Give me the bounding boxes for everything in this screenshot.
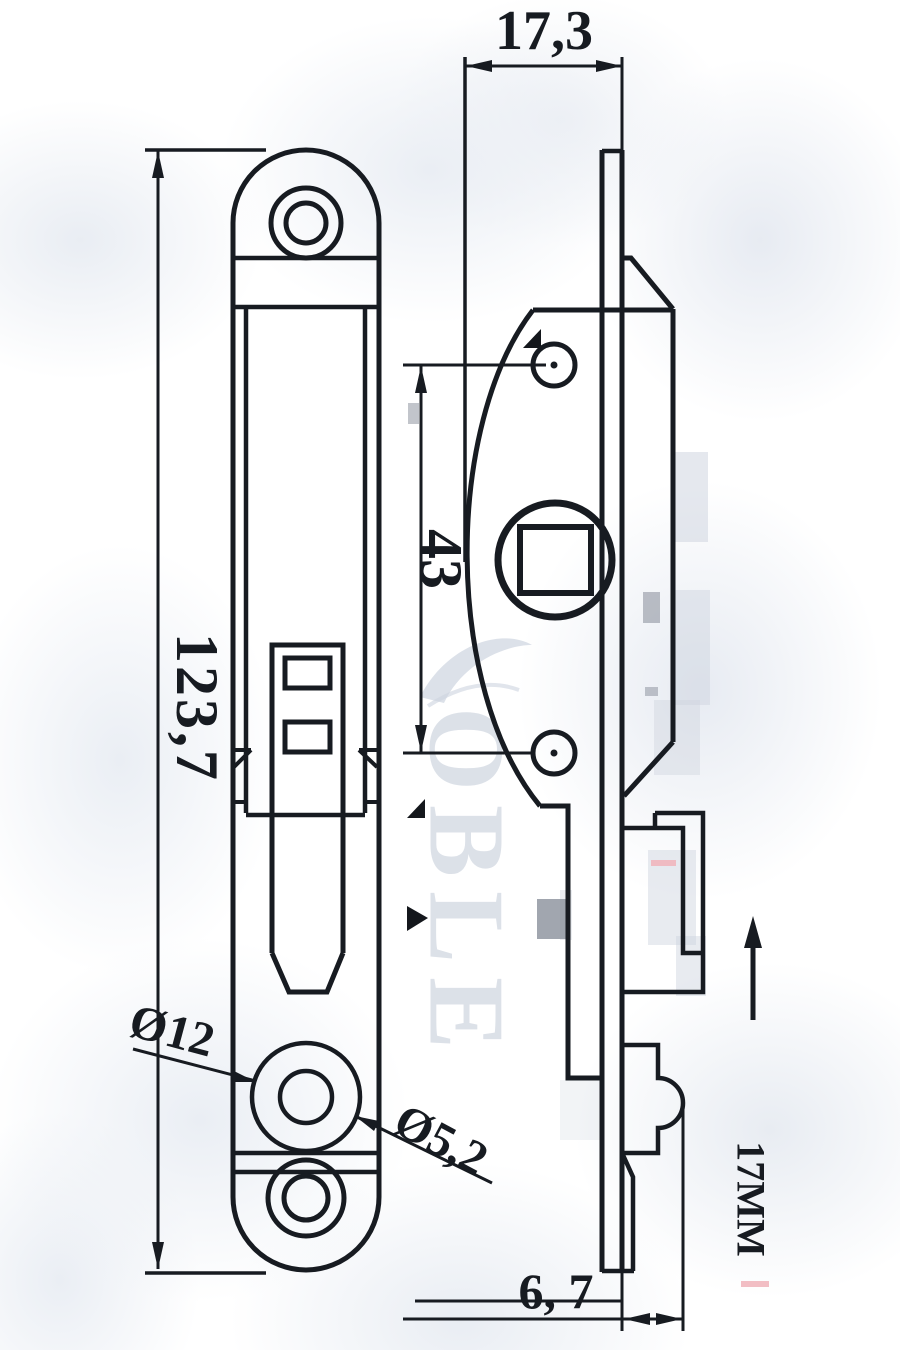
dim-label-hole-diameter: Ø5,2	[386, 1094, 497, 1186]
watermark-fragment	[674, 452, 708, 542]
arrowhead	[152, 151, 164, 178]
arrowhead	[152, 1242, 164, 1269]
dim-label-counterbore-diameter: Ø12	[124, 994, 220, 1067]
spindle-square-hole	[520, 527, 591, 593]
side-bottom-screw-center-dot	[551, 750, 558, 757]
arrowhead	[596, 60, 622, 72]
side-top-screw-center-dot	[551, 362, 558, 369]
case-front-lower-edge	[540, 806, 602, 1078]
dim-label-overall-height: 123,7	[164, 633, 230, 783]
bottom-screw-hole	[284, 1176, 328, 1220]
watermark-ink-wedge	[523, 329, 541, 348]
counterbore-hole-d12	[252, 1043, 360, 1151]
watermark-fragment	[560, 1080, 600, 1140]
arrowhead	[355, 1116, 379, 1131]
bottom-tab	[622, 1045, 683, 1271]
top-screw-hole-counterbore	[271, 188, 341, 258]
pink-artifact	[741, 1281, 769, 1287]
case-top-chamfer	[622, 258, 673, 309]
arrowhead	[624, 1313, 650, 1325]
watermark-fragment-dark	[537, 899, 566, 939]
watermark-fragment-dark	[645, 687, 658, 696]
pink-artifact	[651, 860, 676, 866]
spindle-hub-circle	[498, 503, 612, 617]
right-notch	[359, 750, 379, 802]
technical-drawing: OBLE	[0, 0, 900, 1350]
dim-label-bolt-throw: 17MM	[729, 1141, 774, 1257]
arrowhead	[415, 366, 427, 393]
throw-arrow-head	[744, 916, 762, 948]
watermark-fragment-dark	[408, 403, 419, 424]
watermark-fragment	[672, 590, 710, 705]
front-view	[233, 150, 379, 1270]
arrowhead	[656, 1313, 682, 1325]
bolt-tip	[272, 953, 343, 992]
drawing-page: OBLE	[0, 0, 900, 1350]
dim-label-faceplate-offset: 6, 7	[519, 1263, 594, 1319]
plate-outline	[233, 150, 379, 1270]
arrowhead	[232, 1071, 256, 1082]
arrowhead	[466, 60, 492, 72]
bolt-square-hole	[285, 722, 330, 752]
top-screw-hole	[286, 203, 326, 243]
watermark-fragment-dark	[643, 592, 660, 623]
watermark-fragment	[654, 700, 700, 775]
dim-label-top-width: 17,3	[495, 0, 593, 62]
dim-label-hole-spacing: 43	[408, 529, 474, 589]
bolt-body	[272, 645, 343, 953]
through-hole-d5-2	[280, 1071, 332, 1123]
bolt-square-hole	[285, 658, 330, 688]
left-notch	[233, 750, 251, 802]
watermark-text: OBLE	[407, 707, 526, 1063]
